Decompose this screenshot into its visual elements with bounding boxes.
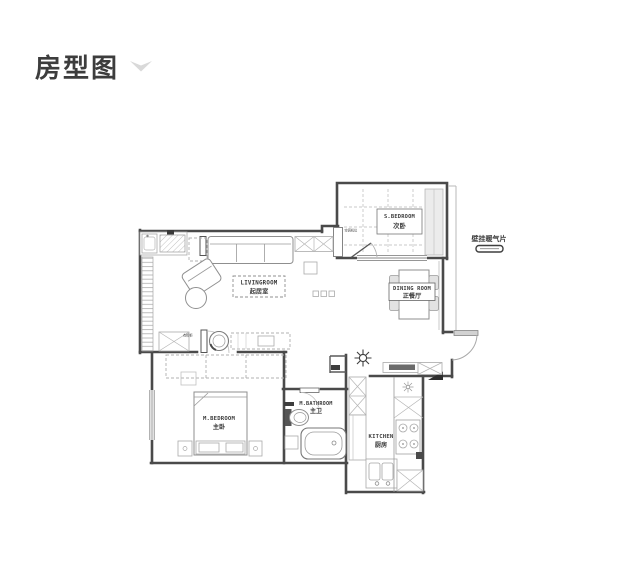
- room-kitchen: KITCHEN 厨房: [349, 377, 423, 492]
- kitchen-bottom-xbox: [397, 470, 423, 491]
- sbedroom-label-zh: 次卧: [393, 221, 406, 230]
- round-side-table: [186, 288, 207, 309]
- bedroom-wardrobe-dashed: [166, 355, 286, 378]
- stove-knob: [416, 452, 422, 459]
- pouf: [210, 332, 229, 351]
- mbedroom-label-en: M.BEDROOM: [203, 416, 236, 422]
- room-m-bedroom: M.BEDROOM 主卧: [166, 355, 286, 456]
- radiator-label: 壁挂暖气片: [472, 234, 507, 243]
- kitchen-right-counter: [394, 377, 423, 492]
- small-side-table: [304, 262, 317, 274]
- bedroom-door-leaf: [201, 330, 207, 353]
- living-top-cabinet: [295, 237, 333, 252]
- entrance: [355, 331, 479, 381]
- stove: [396, 420, 420, 454]
- room-living: 衣帽柜 LIVINGROOM 起居室: [140, 230, 335, 353]
- three-stools: [313, 291, 335, 297]
- faucet-mark: [167, 230, 174, 235]
- dining-label-en: DINING ROOM: [393, 286, 431, 292]
- bathroom-dark-mark: [284, 402, 294, 406]
- living-label-zh: 起居室: [249, 288, 269, 296]
- mbedroom-label-zh: 主卧: [213, 423, 226, 431]
- tv-console: [231, 333, 290, 349]
- bath-fixture: [285, 436, 298, 449]
- floor-plan-image: S.BEDROOM 次卧 空调机位 DINING ROOM 正餐厅 壁挂暖气片: [0, 0, 640, 568]
- exterior-boundary-line: [448, 186, 456, 332]
- duct-box: [330, 356, 346, 373]
- room-s-bedroom: S.BEDROOM 次卧 空调机位: [334, 189, 444, 258]
- sbedroom-label-en: S.BEDROOM: [384, 214, 416, 220]
- kitchen-label-zh: 厨房: [375, 441, 387, 449]
- room-m-bathroom: M.BATHROOM 主卫: [284, 388, 346, 459]
- mbathroom-label-en: M.BATHROOM: [299, 401, 332, 407]
- closet-label: 衣帽柜: [183, 333, 193, 338]
- bathtub: [301, 428, 346, 459]
- floorplan-page: 房型图: [0, 0, 640, 568]
- ac-slot: [334, 228, 343, 257]
- toilet: [285, 409, 309, 426]
- dining-label-zh: 正餐厅: [403, 292, 422, 300]
- washing-machine: [160, 235, 185, 252]
- sofa: [208, 237, 293, 264]
- ceiling-lamp-icon: [355, 350, 372, 367]
- entry-xbox: [418, 363, 442, 375]
- entry-cabinet-bar: [389, 365, 415, 371]
- living-label-en: LIVINGROOM: [241, 281, 278, 287]
- bathroom-door-leaf: [300, 388, 319, 393]
- kitchen-left-cabinets: [349, 377, 366, 460]
- bedroom-stool: [181, 372, 196, 385]
- nightstand-right: [249, 441, 262, 456]
- mbathroom-label-zh: 主卫: [310, 407, 322, 415]
- balcony-door-leaf: [200, 237, 206, 256]
- left-radiator-strip: [142, 257, 153, 351]
- duct-mark: [331, 365, 340, 370]
- kitchen-label-en: KITCHEN: [369, 434, 394, 440]
- entrance-door-leaf: [454, 331, 478, 336]
- utility-corner: [140, 230, 187, 255]
- nightstand-left: [178, 441, 192, 456]
- entrance-door-arc: [452, 335, 477, 360]
- vent-flower-icon: [403, 382, 414, 393]
- radiator-annotation: 壁挂暖气片: [472, 234, 507, 252]
- kitchen-sink: [366, 459, 397, 488]
- ac-label: 空调机位: [345, 228, 359, 233]
- room-dining: DINING ROOM 正餐厅: [389, 270, 439, 319]
